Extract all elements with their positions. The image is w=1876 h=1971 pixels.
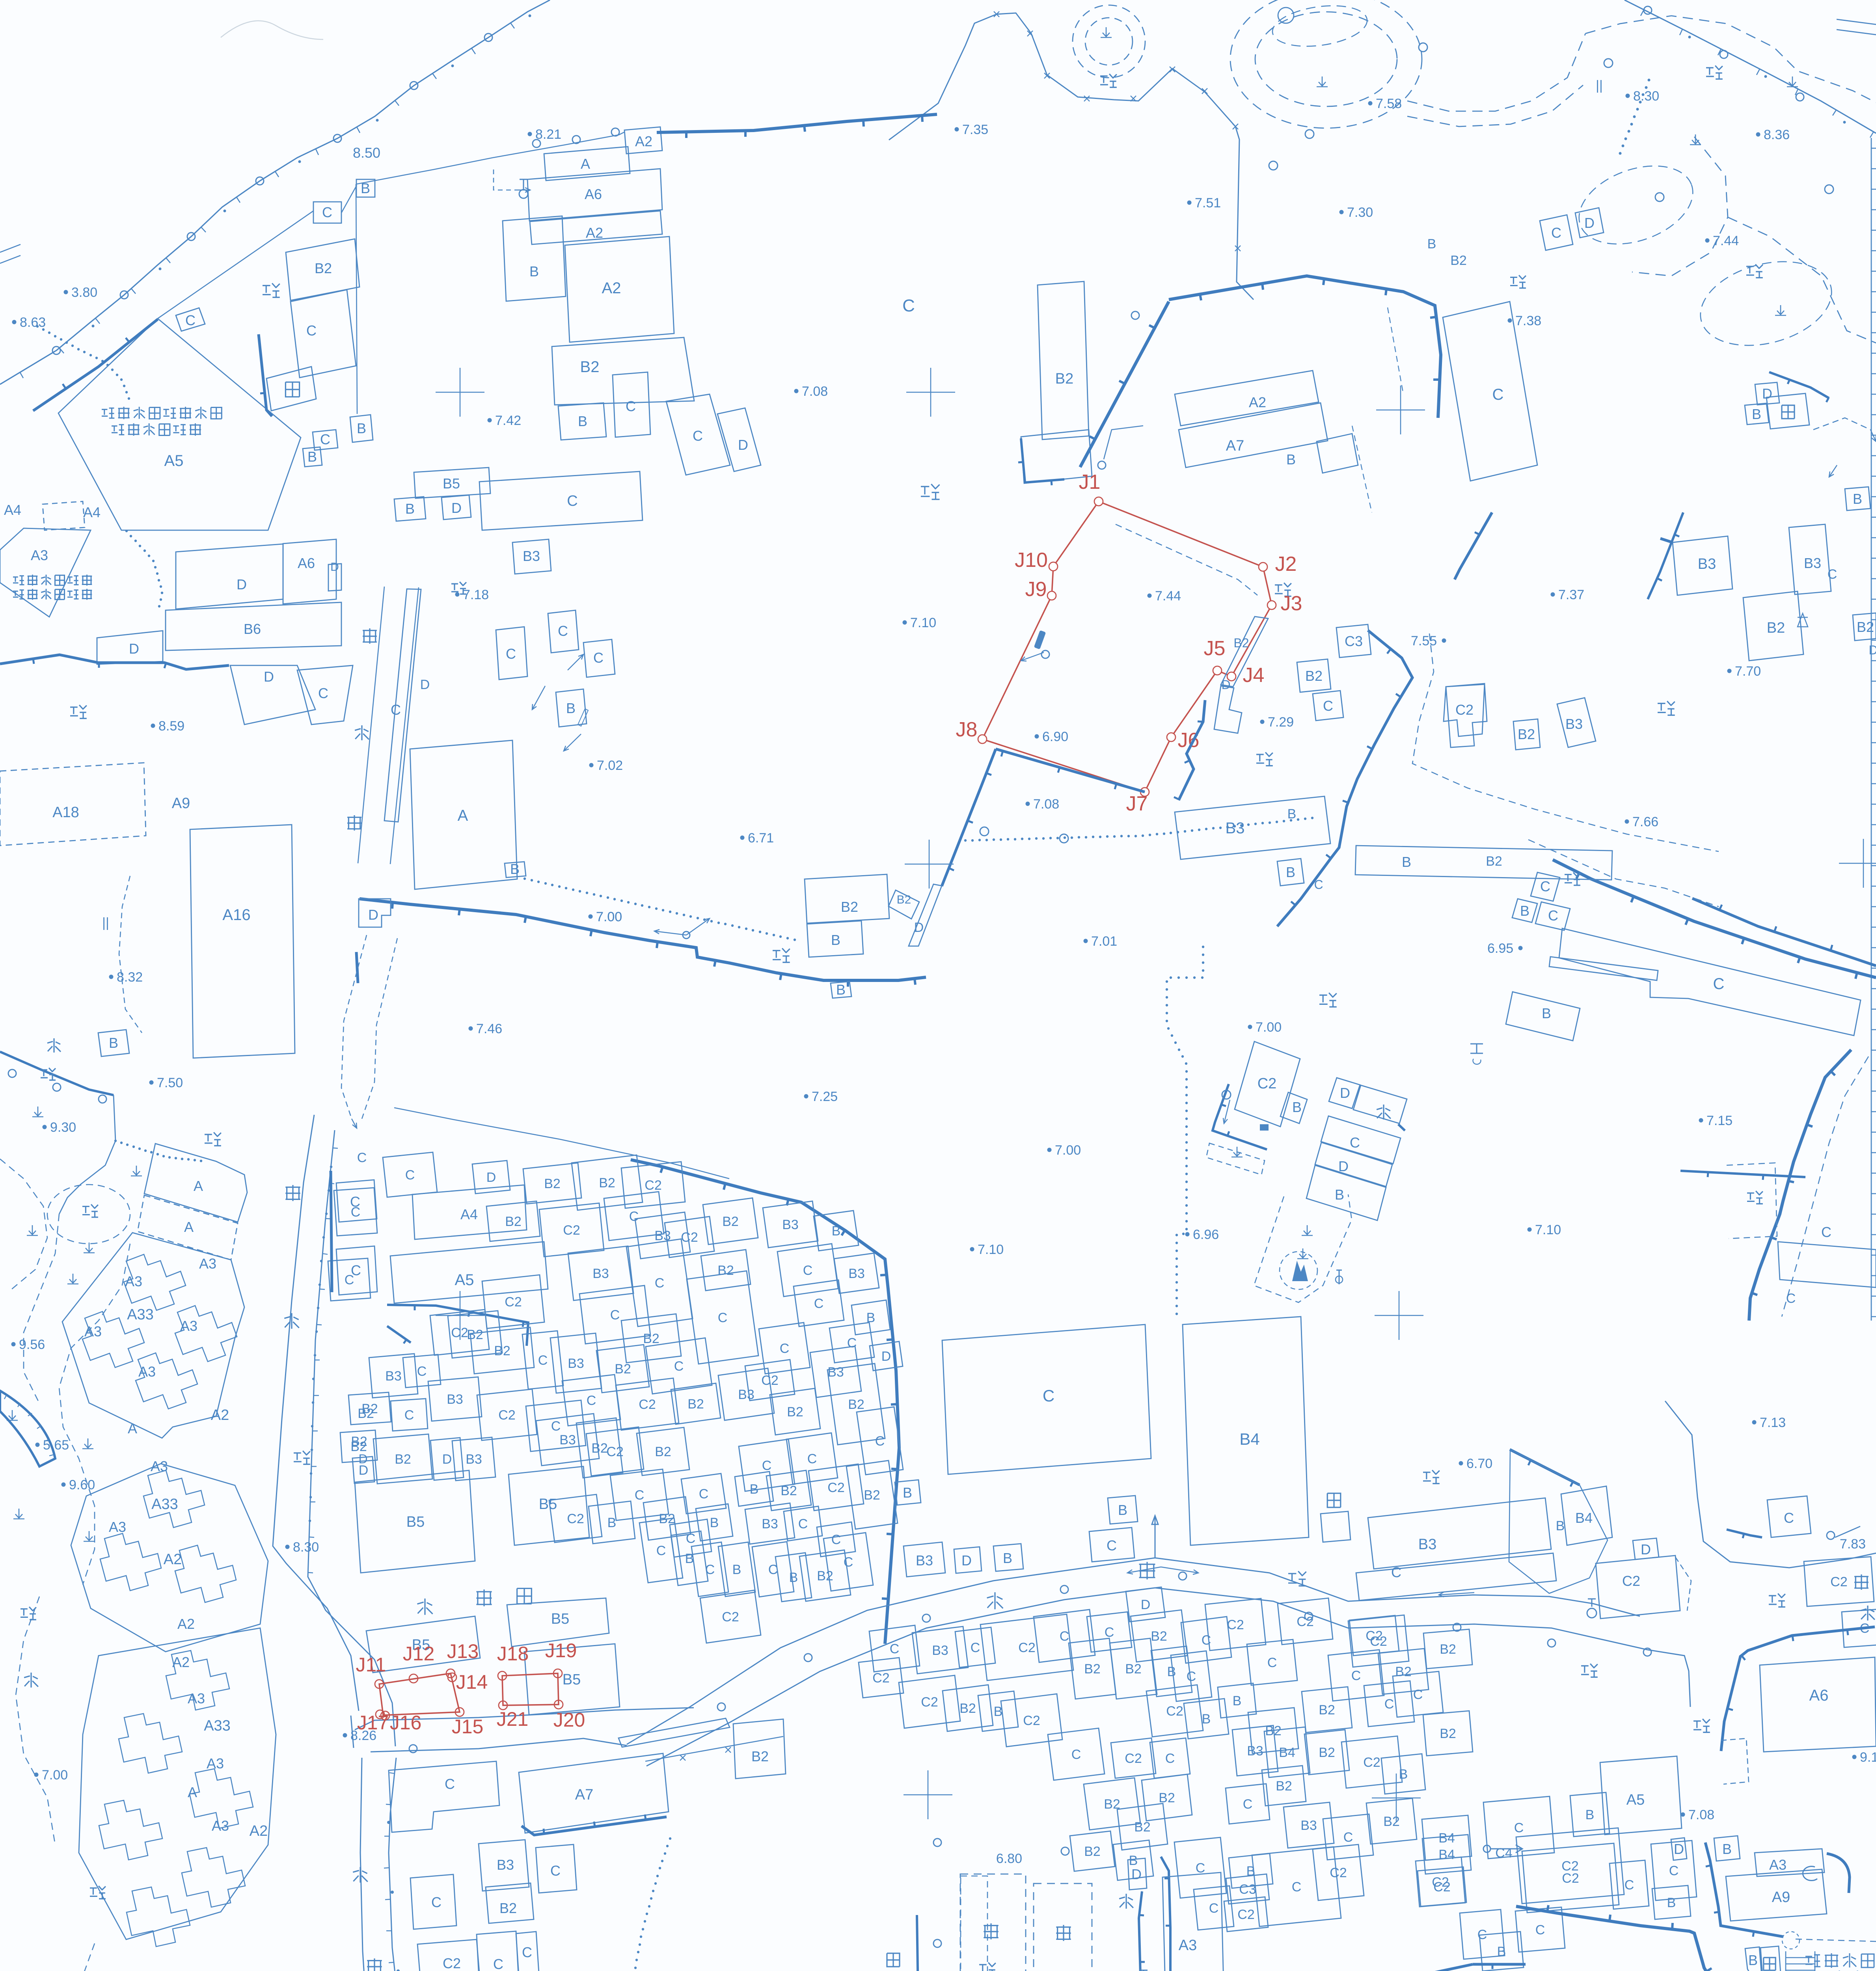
svg-text:C: C — [1391, 1564, 1401, 1580]
svg-text:B3: B3 — [1698, 556, 1716, 572]
svg-text:B2: B2 — [687, 1397, 704, 1412]
svg-text:B3: B3 — [523, 548, 540, 564]
svg-text:C: C — [844, 1555, 853, 1570]
svg-text:D: D — [1674, 1841, 1684, 1857]
svg-text:C: C — [493, 1956, 503, 1971]
svg-text:C2: C2 — [1297, 1614, 1313, 1629]
svg-text:B3: B3 — [592, 1266, 609, 1281]
svg-text:B2: B2 — [864, 1488, 880, 1503]
svg-text:C: C — [1209, 1901, 1219, 1916]
svg-text:C: C — [1243, 1797, 1253, 1812]
svg-text:7.01: 7.01 — [1091, 934, 1117, 949]
svg-text:7.02: 7.02 — [597, 758, 623, 773]
svg-text:7.42: 7.42 — [495, 413, 521, 428]
svg-text:J18: J18 — [497, 1643, 529, 1665]
svg-text:J17: J17 — [357, 1712, 389, 1734]
svg-text:B: B — [1118, 1502, 1127, 1518]
svg-text:D: D — [1584, 215, 1595, 231]
svg-text:8.59: 8.59 — [158, 719, 184, 734]
svg-text:B3: B3 — [497, 1857, 514, 1873]
svg-text:B2: B2 — [505, 1214, 522, 1229]
svg-text:7.35: 7.35 — [962, 122, 988, 137]
svg-text:8.63: 8.63 — [20, 315, 46, 330]
svg-text:D: D — [1340, 1085, 1350, 1101]
svg-text:D: D — [738, 437, 748, 453]
svg-text:7.37: 7.37 — [1558, 587, 1584, 602]
svg-text:B2: B2 — [1319, 1745, 1335, 1760]
svg-text:C2: C2 — [1622, 1573, 1640, 1589]
svg-text:B4: B4 — [1438, 1847, 1455, 1862]
svg-text:C2: C2 — [827, 1480, 844, 1495]
svg-text:A7: A7 — [1226, 438, 1244, 454]
svg-text:B: B — [1335, 1187, 1344, 1203]
svg-text:C2: C2 — [505, 1295, 522, 1310]
svg-text:C: C — [1292, 1880, 1302, 1895]
svg-text:C: C — [798, 1516, 808, 1531]
svg-text:A6: A6 — [1809, 1687, 1829, 1704]
svg-text:B2: B2 — [1151, 1629, 1167, 1644]
svg-text:A6: A6 — [585, 186, 602, 202]
svg-text:C: C — [522, 1944, 532, 1960]
svg-text:A33: A33 — [151, 1496, 178, 1513]
svg-text:A3: A3 — [109, 1519, 126, 1535]
svg-text:B: B — [1003, 1550, 1012, 1566]
svg-text:C: C — [803, 1263, 813, 1278]
svg-text:B: B — [1667, 1895, 1676, 1910]
svg-text:B: B — [1497, 1944, 1506, 1959]
svg-text:A: A — [458, 807, 468, 824]
svg-text:B: B — [1202, 1712, 1211, 1727]
svg-text:D: D — [881, 1349, 891, 1364]
svg-text:C2: C2 — [1366, 1628, 1382, 1643]
svg-text:C: C — [357, 1150, 367, 1165]
svg-text:B2: B2 — [1319, 1703, 1335, 1718]
svg-text:C: C — [629, 1209, 639, 1224]
svg-text:C: C — [1343, 1830, 1353, 1845]
svg-text:B: B — [831, 932, 840, 948]
svg-text:C: C — [593, 650, 604, 666]
svg-text:B2: B2 — [787, 1405, 803, 1420]
svg-text:C: C — [890, 1641, 900, 1656]
svg-text:C2: C2 — [1561, 1859, 1578, 1874]
svg-text:B3: B3 — [1418, 1536, 1436, 1553]
svg-text:C2: C2 — [681, 1230, 698, 1245]
svg-text:D: D — [1641, 1541, 1651, 1557]
svg-text:A2: A2 — [250, 1823, 268, 1839]
svg-text:C: C — [1625, 1878, 1634, 1893]
svg-text:B: B — [1287, 807, 1297, 822]
svg-text:B2: B2 — [1486, 854, 1502, 869]
svg-text:D: D — [420, 677, 430, 692]
svg-text:B2: B2 — [1084, 1662, 1101, 1677]
svg-text:J4: J4 — [1243, 664, 1265, 687]
svg-text:C: C — [405, 1168, 415, 1183]
svg-text:B: B — [1556, 1518, 1565, 1533]
svg-text:C: C — [351, 1262, 361, 1278]
svg-text:A3: A3 — [1179, 1937, 1197, 1954]
svg-text:A2: A2 — [586, 225, 603, 241]
svg-text:B2: B2 — [1134, 1820, 1151, 1835]
svg-text:C: C — [1043, 1386, 1054, 1405]
svg-text:B3: B3 — [932, 1643, 948, 1658]
svg-text:B6: B6 — [244, 621, 261, 637]
svg-text:C: C — [831, 1532, 841, 1547]
svg-text:C: C — [320, 431, 330, 447]
svg-text:B: B — [566, 700, 576, 716]
svg-text:B3: B3 — [827, 1365, 844, 1380]
svg-text:D: D — [961, 1552, 972, 1569]
svg-text:A5: A5 — [1626, 1792, 1645, 1808]
svg-text:7.30: 7.30 — [1347, 205, 1373, 220]
svg-text:C: C — [1187, 1669, 1196, 1684]
svg-text:B3: B3 — [1565, 716, 1583, 732]
svg-text:C: C — [1548, 907, 1558, 924]
svg-text:C: C — [1267, 1655, 1277, 1670]
svg-text:B: B — [405, 501, 415, 517]
svg-text:B2: B2 — [848, 1397, 864, 1412]
svg-text:A33: A33 — [127, 1306, 154, 1323]
svg-text:J14: J14 — [456, 1671, 488, 1693]
svg-text:A3: A3 — [212, 1818, 229, 1834]
svg-text:B2: B2 — [580, 358, 600, 376]
svg-text:J13: J13 — [447, 1640, 479, 1662]
svg-text:A3: A3 — [188, 1690, 205, 1706]
svg-text:B2: B2 — [1857, 619, 1874, 635]
svg-text:B2: B2 — [1125, 1662, 1142, 1677]
svg-text:A: A — [194, 1178, 203, 1194]
svg-text:B: B — [1752, 406, 1761, 422]
svg-text:7.00: 7.00 — [1256, 1020, 1282, 1035]
svg-text:B5: B5 — [539, 1496, 557, 1513]
svg-text:J20: J20 — [553, 1709, 585, 1731]
svg-text:B2: B2 — [1767, 620, 1785, 636]
svg-text:B: B — [1286, 864, 1295, 880]
svg-text:B3: B3 — [447, 1392, 463, 1407]
svg-text:C: C — [431, 1894, 442, 1910]
svg-text:A3: A3 — [1769, 1857, 1787, 1873]
svg-text:C2: C2 — [1433, 1880, 1450, 1895]
svg-text:7.10: 7.10 — [910, 615, 936, 630]
svg-text:B: B — [1722, 1841, 1732, 1857]
svg-text:B2: B2 — [1440, 1726, 1456, 1741]
svg-text:B5: B5 — [406, 1514, 425, 1530]
svg-text:A18: A18 — [52, 804, 79, 821]
svg-text:B2: B2 — [1159, 1790, 1175, 1805]
svg-text:J1: J1 — [1079, 471, 1101, 494]
svg-text:J12: J12 — [403, 1643, 435, 1665]
svg-text:A3: A3 — [125, 1273, 142, 1289]
svg-text:C3: C3 — [1345, 633, 1363, 649]
svg-text:B: B — [1542, 1005, 1551, 1021]
svg-text:C: C — [971, 1640, 980, 1655]
svg-text:B: B — [109, 1035, 118, 1051]
svg-text:A6: A6 — [298, 555, 315, 571]
svg-text:C: C — [635, 1488, 645, 1503]
svg-text:A3: A3 — [31, 547, 48, 563]
svg-text:7.58: 7.58 — [1376, 96, 1402, 111]
svg-text:7.70: 7.70 — [1735, 664, 1761, 679]
svg-text:B: B — [789, 1570, 798, 1585]
svg-text:7.38: 7.38 — [1515, 313, 1541, 328]
svg-text:D: D — [1221, 678, 1230, 692]
svg-text:B2: B2 — [1440, 1642, 1456, 1657]
svg-text:B5: B5 — [563, 1671, 581, 1688]
svg-text:B4: B4 — [1438, 1831, 1455, 1846]
svg-text:C: C — [1314, 877, 1323, 892]
svg-text:B: B — [1853, 491, 1862, 507]
svg-text:C2: C2 — [1363, 1755, 1380, 1770]
svg-text:B3: B3 — [466, 1452, 482, 1467]
svg-text:6.96: 6.96 — [1193, 1227, 1219, 1242]
svg-text:C2: C2 — [1330, 1865, 1347, 1880]
svg-text:B2: B2 — [817, 1569, 833, 1584]
svg-text:C: C — [306, 322, 317, 339]
svg-text:C: C — [391, 702, 401, 718]
svg-text:A2: A2 — [177, 1616, 195, 1632]
svg-text:C: C — [185, 312, 196, 328]
svg-text:B2: B2 — [1233, 636, 1249, 650]
svg-text:C: C — [417, 1364, 427, 1379]
svg-text:C: C — [674, 1359, 684, 1374]
svg-text:A5: A5 — [455, 1271, 474, 1289]
svg-text:B: B — [1233, 1693, 1242, 1708]
svg-text:C: C — [1540, 878, 1550, 894]
svg-text:||: || — [1596, 78, 1603, 93]
svg-text:B2: B2 — [1518, 726, 1535, 742]
svg-text:C: C — [762, 1458, 772, 1473]
svg-text:B2: B2 — [615, 1362, 631, 1377]
svg-text:C: C — [404, 1408, 414, 1423]
svg-text:7.00: 7.00 — [596, 909, 622, 924]
svg-text:B2: B2 — [1395, 1664, 1412, 1679]
svg-text:C: C — [686, 1531, 696, 1546]
svg-text:C2: C2 — [1018, 1640, 1035, 1655]
svg-text:D: D — [129, 641, 139, 657]
svg-text:B: B — [307, 449, 317, 465]
svg-text:C: C — [1828, 567, 1837, 582]
svg-text:B3: B3 — [762, 1516, 778, 1531]
svg-text:7.15: 7.15 — [1706, 1113, 1733, 1128]
svg-text:7.44: 7.44 — [1713, 233, 1739, 248]
svg-text:8.50: 8.50 — [353, 145, 380, 161]
svg-text:C: C — [1351, 1668, 1361, 1683]
svg-text:B: B — [1520, 903, 1529, 919]
svg-text:C: C — [551, 1419, 561, 1434]
svg-text:9.10: 9.10 — [1860, 1750, 1876, 1765]
svg-text:C: C — [718, 1310, 728, 1325]
svg-text:B3: B3 — [385, 1369, 402, 1384]
svg-text:B2: B2 — [655, 1444, 671, 1459]
svg-text:B2: B2 — [1305, 668, 1323, 684]
svg-text:A9: A9 — [172, 795, 190, 812]
svg-text:A: A — [188, 1784, 197, 1800]
svg-text:C: C — [1821, 1224, 1831, 1240]
svg-text:J8: J8 — [956, 718, 978, 741]
svg-text:C: C — [655, 1276, 665, 1291]
svg-text:C: C — [699, 1487, 709, 1502]
svg-text:C2: C2 — [761, 1373, 778, 1388]
svg-text:D: D — [451, 500, 462, 516]
svg-text:C: C — [814, 1296, 824, 1311]
svg-text:B: B — [832, 1224, 841, 1239]
svg-text:J2: J2 — [1275, 553, 1297, 576]
svg-text:D: D — [358, 1452, 367, 1466]
svg-text:B: B — [1286, 451, 1296, 468]
svg-text:C: C — [875, 1434, 885, 1449]
svg-text:B5: B5 — [551, 1611, 569, 1627]
svg-text:C4: C4 — [1495, 1846, 1512, 1861]
svg-text:C: C — [1492, 386, 1504, 403]
svg-text:C: C — [1165, 1751, 1175, 1766]
svg-text:A: A — [184, 1219, 194, 1235]
svg-text:J9: J9 — [1025, 578, 1047, 601]
svg-text:B: B — [1585, 1807, 1595, 1822]
svg-text:8.21: 8.21 — [535, 127, 561, 142]
svg-text:D: D — [330, 561, 339, 574]
svg-text:A33: A33 — [204, 1718, 231, 1734]
svg-text:B3: B3 — [1247, 1744, 1263, 1759]
svg-text:C: C — [538, 1353, 548, 1368]
svg-text:C: C — [780, 1341, 790, 1356]
svg-text:J5: J5 — [1204, 637, 1226, 660]
svg-text:B: B — [529, 263, 539, 279]
svg-text:C: C — [705, 1562, 715, 1577]
svg-text:B3: B3 — [782, 1217, 799, 1232]
svg-text:J21: J21 — [497, 1708, 529, 1730]
svg-text:A2: A2 — [164, 1551, 182, 1568]
svg-text:B3: B3 — [1226, 820, 1245, 837]
svg-text:B2: B2 — [722, 1214, 739, 1229]
svg-text:A3: A3 — [138, 1364, 156, 1380]
svg-text:A4: A4 — [83, 504, 101, 520]
svg-text:B3: B3 — [1804, 555, 1821, 571]
svg-text:A9: A9 — [1772, 1889, 1790, 1906]
svg-text:7.08: 7.08 — [1688, 1807, 1714, 1822]
svg-text:B2: B2 — [643, 1331, 659, 1346]
svg-text:7.18: 7.18 — [463, 587, 489, 602]
svg-text:C: C — [567, 493, 578, 509]
svg-text:7.08: 7.08 — [1033, 797, 1059, 812]
svg-text:B: B — [510, 861, 520, 877]
svg-text:7.44: 7.44 — [1155, 589, 1181, 604]
svg-text:B3: B3 — [916, 1552, 933, 1569]
svg-text:7.83: 7.83 — [1840, 1537, 1866, 1552]
svg-text:C: C — [656, 1543, 666, 1558]
svg-text:C2: C2 — [1166, 1704, 1183, 1719]
svg-text:J7: J7 — [1126, 792, 1148, 815]
svg-text:D: D — [1141, 1597, 1151, 1612]
svg-text:C2: C2 — [451, 1325, 468, 1340]
svg-text:7.55: 7.55 — [1411, 633, 1437, 648]
svg-text:B2: B2 — [358, 1406, 374, 1421]
svg-text:C: C — [550, 1863, 561, 1879]
svg-text:7.50: 7.50 — [157, 1075, 183, 1090]
svg-text:A16: A16 — [222, 906, 250, 924]
svg-text:B2: B2 — [1383, 1814, 1400, 1829]
svg-text:C: C — [1107, 1537, 1117, 1554]
svg-text:C: C — [350, 1194, 360, 1210]
svg-text:B: B — [1292, 1099, 1302, 1115]
svg-text:C: C — [1105, 1625, 1114, 1640]
svg-text:8.30: 8.30 — [293, 1540, 319, 1555]
svg-text:C: C — [807, 1451, 817, 1466]
svg-text:B: B — [1427, 237, 1436, 251]
svg-text:B3: B3 — [1300, 1818, 1317, 1833]
svg-text:C2: C2 — [1227, 1617, 1244, 1632]
svg-text:B2: B2 — [1265, 1723, 1282, 1738]
svg-text:7.10: 7.10 — [978, 1242, 1004, 1257]
svg-text:C: C — [1384, 1697, 1394, 1712]
svg-text:B2: B2 — [1450, 253, 1467, 268]
svg-text:8.30: 8.30 — [1633, 89, 1659, 104]
svg-text:6.80: 6.80 — [996, 1851, 1022, 1866]
svg-text:7.25: 7.25 — [812, 1089, 838, 1104]
svg-text:C2: C2 — [1455, 702, 1474, 718]
svg-text:C: C — [322, 204, 332, 220]
svg-text:6.90: 6.90 — [1042, 729, 1068, 744]
svg-text:D: D — [1869, 643, 1876, 657]
svg-text:B3: B3 — [559, 1433, 576, 1448]
svg-text:C: C — [587, 1393, 596, 1408]
svg-text:A: A — [581, 156, 590, 172]
svg-text:6.70: 6.70 — [1466, 1456, 1492, 1471]
svg-text:C: C — [1551, 225, 1561, 241]
svg-text:A2: A2 — [1249, 394, 1266, 410]
svg-text:J11: J11 — [356, 1654, 386, 1676]
svg-text:B2: B2 — [467, 1327, 483, 1342]
svg-text:A2: A2 — [211, 1407, 229, 1423]
svg-text:C: C — [1202, 1633, 1211, 1648]
svg-text:C: C — [1060, 1629, 1069, 1644]
svg-text:7.10: 7.10 — [1535, 1222, 1561, 1237]
svg-text:B4: B4 — [1575, 1510, 1593, 1526]
svg-text:B2: B2 — [959, 1701, 976, 1716]
svg-text:7.29: 7.29 — [1268, 715, 1294, 730]
svg-text:B: B — [750, 1482, 759, 1497]
svg-text:B: B — [1748, 1952, 1758, 1968]
svg-text:B2: B2 — [897, 893, 911, 906]
svg-text:C: C — [1413, 1687, 1423, 1702]
svg-text:A7: A7 — [575, 1787, 593, 1803]
svg-text:B: B — [1167, 1664, 1176, 1679]
svg-text:||: || — [102, 915, 109, 930]
svg-text:C: C — [506, 646, 516, 662]
svg-text:B2: B2 — [599, 1176, 615, 1190]
svg-text:B: B — [607, 1515, 617, 1530]
svg-text:D: D — [264, 669, 274, 685]
svg-text:D: D — [237, 576, 247, 592]
svg-text:B2: B2 — [841, 899, 858, 915]
svg-text:C2: C2 — [645, 1178, 661, 1193]
svg-text:6.71: 6.71 — [748, 831, 774, 846]
svg-text:C2: C2 — [1237, 1907, 1254, 1922]
svg-text:B2: B2 — [1084, 1844, 1101, 1859]
svg-text:C: C — [1535, 1923, 1545, 1937]
svg-text:B2: B2 — [781, 1483, 797, 1498]
svg-text:C: C — [1071, 1747, 1081, 1762]
svg-text:C2: C2 — [567, 1511, 584, 1526]
svg-text:C: C — [1323, 698, 1333, 714]
svg-text:D: D — [1131, 1866, 1142, 1882]
svg-text:D: D — [1338, 1158, 1349, 1174]
svg-text:C: C — [1514, 1820, 1524, 1835]
svg-text:C2: C2 — [498, 1408, 515, 1423]
svg-text:9.60: 9.60 — [69, 1477, 95, 1492]
svg-text:C2: C2 — [921, 1695, 938, 1710]
svg-text:C2: C2 — [563, 1223, 580, 1238]
svg-text:C: C — [318, 685, 328, 701]
svg-text:A4: A4 — [4, 502, 21, 518]
